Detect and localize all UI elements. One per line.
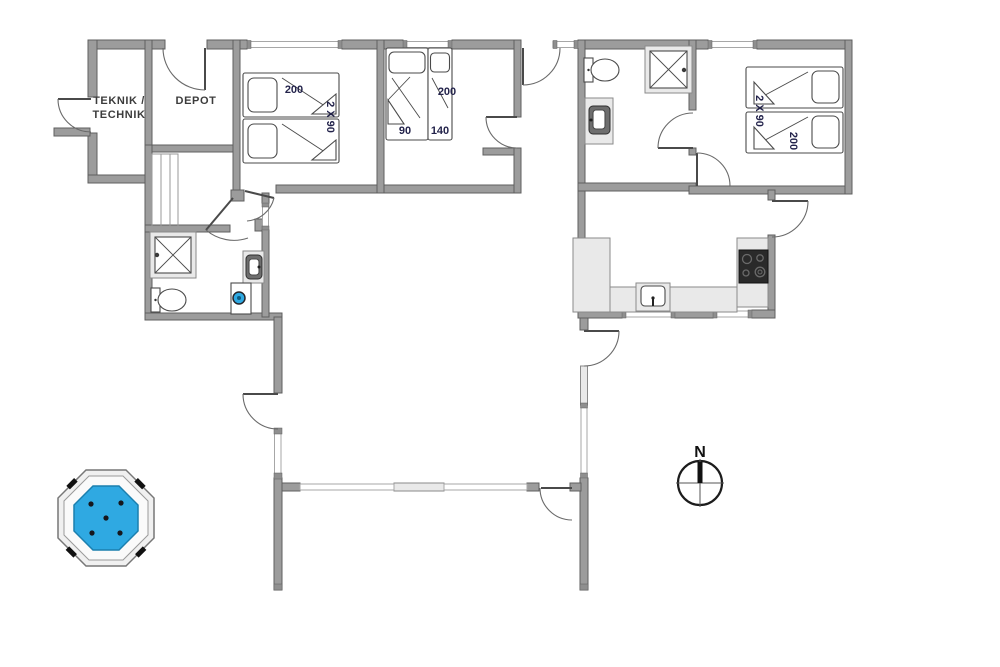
door-bedroom-middle bbox=[486, 117, 517, 148]
cooktop-icon bbox=[739, 250, 768, 283]
compass-north-label: N bbox=[694, 444, 706, 461]
bed-length-label: 200 bbox=[285, 84, 303, 96]
window-north-right bbox=[708, 41, 757, 49]
bed-length-label: 200 bbox=[787, 132, 799, 150]
room-labels: TEKNIK / TECHNIK DEPOT bbox=[92, 95, 216, 121]
kitchen-tall-cabinet bbox=[573, 238, 610, 312]
sink-icon bbox=[243, 251, 264, 283]
bathroom-right-fixtures bbox=[584, 46, 692, 144]
window-hall-passage bbox=[262, 203, 269, 230]
door-kitchen-exterior bbox=[772, 201, 808, 237]
compass-rose: N bbox=[676, 444, 724, 507]
door-bedroom-right bbox=[697, 153, 730, 186]
door-hall-entrance bbox=[523, 48, 560, 85]
toilet-icon bbox=[584, 58, 619, 82]
teknik-label-line1: TEKNIK / bbox=[93, 95, 145, 107]
door-living-terrace-west bbox=[243, 394, 278, 429]
bathroom-left-fixtures bbox=[150, 232, 264, 314]
bedroom-middle-beds: 200 90 140 bbox=[386, 48, 456, 140]
door-living-terrace-south bbox=[540, 488, 572, 520]
bed-length-label: 200 bbox=[438, 86, 456, 98]
door-bedroom-left bbox=[245, 191, 274, 221]
window-south-1 bbox=[300, 484, 394, 490]
kitchen-counter-south bbox=[610, 287, 737, 312]
bed2-width-label: 140 bbox=[431, 125, 449, 137]
toilet-icon bbox=[151, 288, 186, 312]
window-living-west bbox=[274, 428, 282, 479]
depot-label: DEPOT bbox=[176, 95, 217, 107]
kitchen-sink-icon bbox=[636, 283, 670, 311]
hall-closet bbox=[152, 154, 178, 226]
sink-icon bbox=[585, 98, 613, 144]
window-bedroom-middle bbox=[403, 41, 452, 49]
window-south-2 bbox=[444, 484, 527, 490]
shower-icon bbox=[150, 232, 196, 278]
window-bedroom-left bbox=[247, 41, 342, 49]
washing-machine-icon bbox=[231, 283, 251, 314]
window-dining-east bbox=[581, 403, 588, 478]
floor-plan-page: 200 2 X 90 200 90 140 bbox=[0, 0, 1000, 667]
shower-icon bbox=[645, 46, 692, 93]
window-hallway-north bbox=[553, 41, 578, 49]
door-bathroom-right bbox=[658, 113, 693, 148]
hot-tub bbox=[58, 470, 154, 566]
kitchen-fixtures bbox=[573, 238, 768, 312]
floor-plan-drawing: 200 2 X 90 200 90 140 bbox=[0, 0, 1000, 667]
bedroom-left-beds: 200 2 X 90 bbox=[243, 73, 339, 163]
teknik-label-line2: TECHNIK bbox=[92, 109, 145, 121]
bedroom-right-beds: 2 X 90 200 bbox=[746, 67, 843, 153]
door-bathroom-left bbox=[206, 198, 248, 240]
bed1-width-label: 90 bbox=[399, 125, 411, 137]
door-depot-entrance bbox=[163, 48, 205, 90]
door-teknik-entrance bbox=[58, 99, 91, 132]
door-dining-terrace bbox=[584, 331, 619, 366]
bed-width-label: 2 X 90 bbox=[324, 101, 336, 133]
compass-needle bbox=[698, 462, 703, 483]
bed-width-label: 2 X 90 bbox=[753, 95, 765, 127]
